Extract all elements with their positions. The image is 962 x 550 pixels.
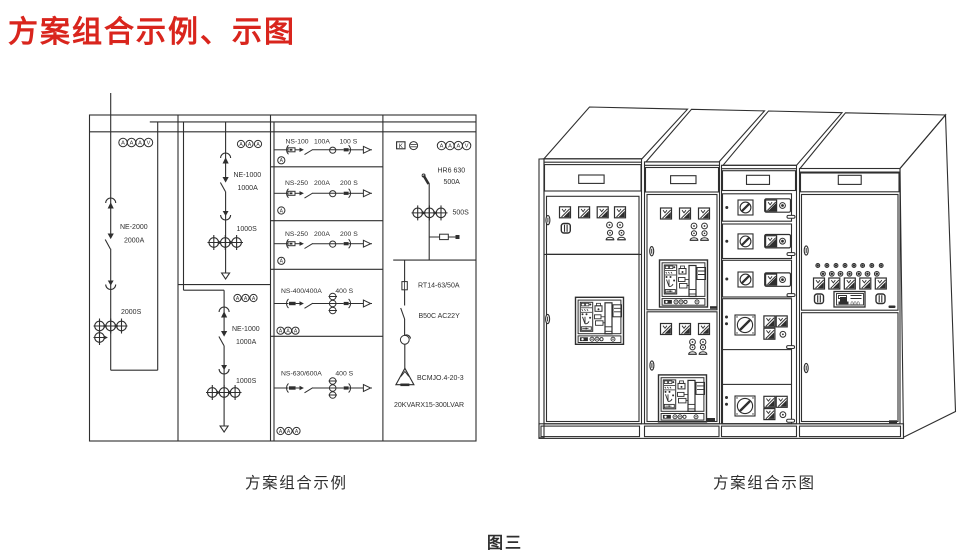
- svg-text:NS-250: NS-250: [285, 231, 308, 238]
- svg-text:400 S: 400 S: [335, 288, 353, 295]
- svg-text:方案组合示例: 方案组合示例: [245, 474, 348, 492]
- svg-text:500S: 500S: [453, 210, 470, 217]
- svg-text:HR6 630: HR6 630: [438, 168, 466, 175]
- svg-text:2000A: 2000A: [124, 238, 145, 245]
- svg-text:2000S: 2000S: [121, 309, 142, 316]
- svg-text:NE-2000: NE-2000: [120, 224, 148, 231]
- svg-text:000: 000: [851, 302, 860, 308]
- svg-text:1000S: 1000S: [236, 378, 257, 385]
- svg-text:NS-100: NS-100: [286, 139, 309, 146]
- svg-text:方案组合示图: 方案组合示图: [713, 474, 816, 492]
- svg-text:1000A: 1000A: [236, 339, 257, 346]
- svg-text:B50C AC22Y: B50C AC22Y: [419, 313, 461, 320]
- svg-text:RT14-63/50A: RT14-63/50A: [418, 282, 460, 289]
- svg-text:500A: 500A: [444, 179, 461, 186]
- svg-text:1000A: 1000A: [238, 185, 259, 192]
- svg-text:200 S: 200 S: [340, 180, 358, 187]
- svg-text:20KVARX15-300LVAR: 20KVARX15-300LVAR: [394, 402, 464, 409]
- svg-text:200A: 200A: [314, 231, 330, 238]
- svg-text:方案组合示例、示图: 方案组合示例、示图: [8, 15, 296, 49]
- svg-text:NS-630/600A: NS-630/600A: [281, 370, 322, 377]
- svg-text:100 S: 100 S: [340, 139, 358, 146]
- svg-text:BCMJO.4-20-3: BCMJO.4-20-3: [417, 375, 464, 382]
- svg-text:1000S: 1000S: [237, 226, 258, 233]
- svg-text:图三: 图三: [487, 534, 523, 550]
- svg-text:NS-250: NS-250: [285, 180, 308, 187]
- svg-text:200A: 200A: [314, 180, 330, 187]
- svg-text:NS-400/400A: NS-400/400A: [281, 288, 322, 295]
- svg-text:NE-1000: NE-1000: [232, 326, 260, 333]
- svg-text:200 S: 200 S: [340, 231, 358, 238]
- svg-text:100A: 100A: [314, 139, 330, 146]
- svg-text:NE-1000: NE-1000: [234, 172, 262, 179]
- svg-text:400 S: 400 S: [335, 370, 353, 377]
